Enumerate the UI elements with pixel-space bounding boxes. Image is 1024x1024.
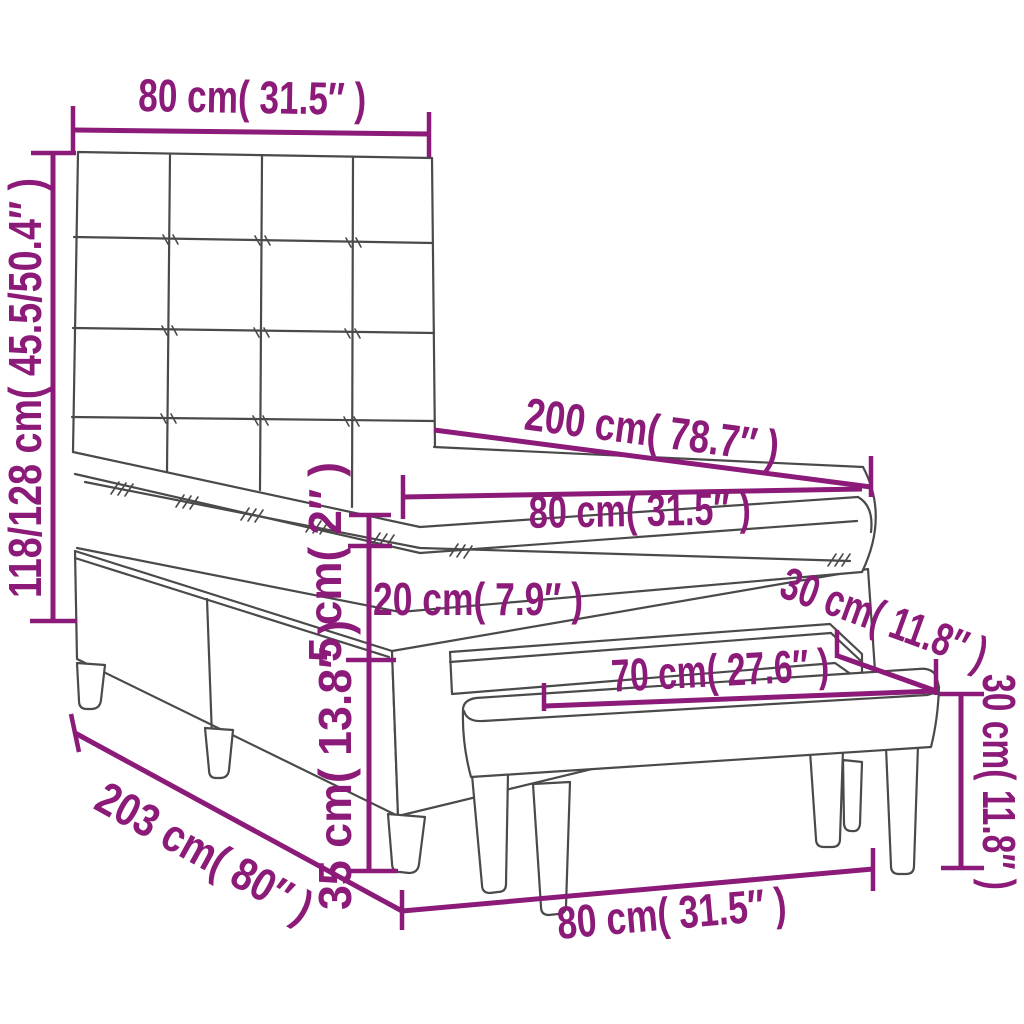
- headboard: [72, 152, 435, 507]
- dimension-overall-width: 80 cm( 31.5″ ): [402, 848, 873, 949]
- dimension-bench-height: 30 cm( 11.8″ ): [939, 674, 1024, 890]
- dimension-overall-width-label: 80 cm( 31.5″ ): [555, 877, 789, 949]
- dimension-mattress-thickness-label: 20 cm( 7.9″ ): [373, 573, 583, 625]
- dimension-headboard-width-label: 80 cm( 31.5″ ): [138, 69, 367, 125]
- dimension-bed-height-label: 118/128 cm( 45.5/50.4″ ): [0, 178, 51, 598]
- bed-dimension-diagram: 80 cm( 31.5″ ) 118/128 cm( 45.5/50.4″ ) …: [0, 0, 1024, 1024]
- dimension-mattress-thickness: 20 cm( 7.9″ ): [373, 573, 583, 625]
- dimension-mattress-length: 200 cm( 78.7″ ): [434, 388, 871, 497]
- diagram-page: 80 cm( 31.5″ ) 118/128 cm( 45.5/50.4″ ) …: [0, 0, 1024, 1024]
- dimension-headboard-width: 80 cm( 31.5″ ): [73, 69, 430, 157]
- dimension-bed-height: 118/128 cm( 45.5/50.4″ ): [0, 153, 77, 621]
- dimension-bench-height-label: 30 cm( 11.8″ ): [973, 674, 1024, 890]
- dimension-mattress-width-label: 80 cm( 31.5″ ): [528, 482, 751, 538]
- dimension-bed-length-label: 203 cm( 80″ ): [87, 771, 322, 933]
